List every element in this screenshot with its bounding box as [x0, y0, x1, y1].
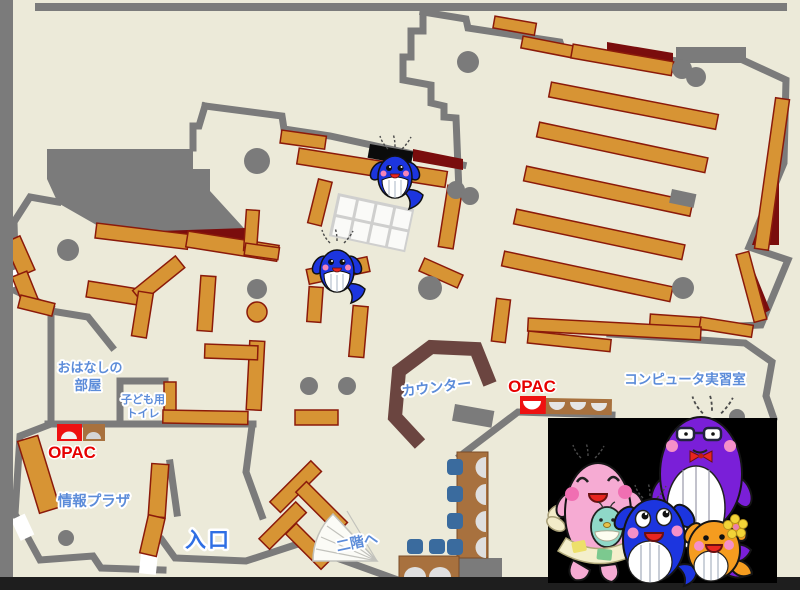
- pillar-column: [338, 377, 356, 395]
- pillar-column: [247, 279, 267, 299]
- label-storytelling-room: おはなしの: [57, 360, 122, 375]
- bookshelf: [148, 464, 169, 518]
- label-kids-toilet: トイレ: [127, 407, 160, 420]
- pillar-column: [461, 187, 479, 205]
- label-kids-toilet: 子ども用: [121, 393, 165, 406]
- chair: [447, 486, 463, 502]
- pillar-column: [244, 148, 270, 174]
- label-storytelling-room: 部屋: [75, 377, 102, 393]
- label-entrance: 入口: [185, 529, 231, 552]
- pillar-column: [57, 239, 79, 261]
- bookshelf: [197, 276, 216, 332]
- pillar-column: [300, 377, 318, 395]
- bookshelf: [163, 410, 248, 424]
- library-floor-map-image: おはなしの 部屋 子ども用 トイレ OPAC 情報プラザ 入口 カウンター OP…: [0, 0, 800, 590]
- library-floor-map: おはなしの 部屋 子ども用 トイレ OPAC 情報プラザ 入口 カウンター OP…: [0, 0, 800, 590]
- pillar-column: [418, 276, 442, 300]
- frame-top: [35, 3, 787, 11]
- opac-terminal-left: [57, 424, 105, 441]
- bookshelf: [295, 410, 338, 425]
- pillar-column: [672, 277, 694, 299]
- bookshelf: [205, 344, 258, 360]
- label-opac-right: OPAC: [508, 377, 556, 396]
- pillar-column: [686, 67, 706, 87]
- chair: [447, 459, 463, 475]
- pillar-column: [457, 51, 479, 73]
- bookshelf: [307, 287, 323, 323]
- label-opac-left: OPAC: [48, 443, 96, 462]
- label-computer-room: コンピュータ実習室: [624, 371, 746, 387]
- opac-seat: [549, 402, 607, 411]
- pillar-column: [58, 530, 74, 546]
- chair: [407, 539, 423, 554]
- chair: [429, 539, 445, 554]
- round-table: [247, 302, 267, 322]
- chair: [447, 513, 463, 529]
- frame-left: [0, 0, 13, 590]
- chair: [447, 539, 463, 555]
- label-info-plaza: 情報プラザ: [58, 492, 131, 510]
